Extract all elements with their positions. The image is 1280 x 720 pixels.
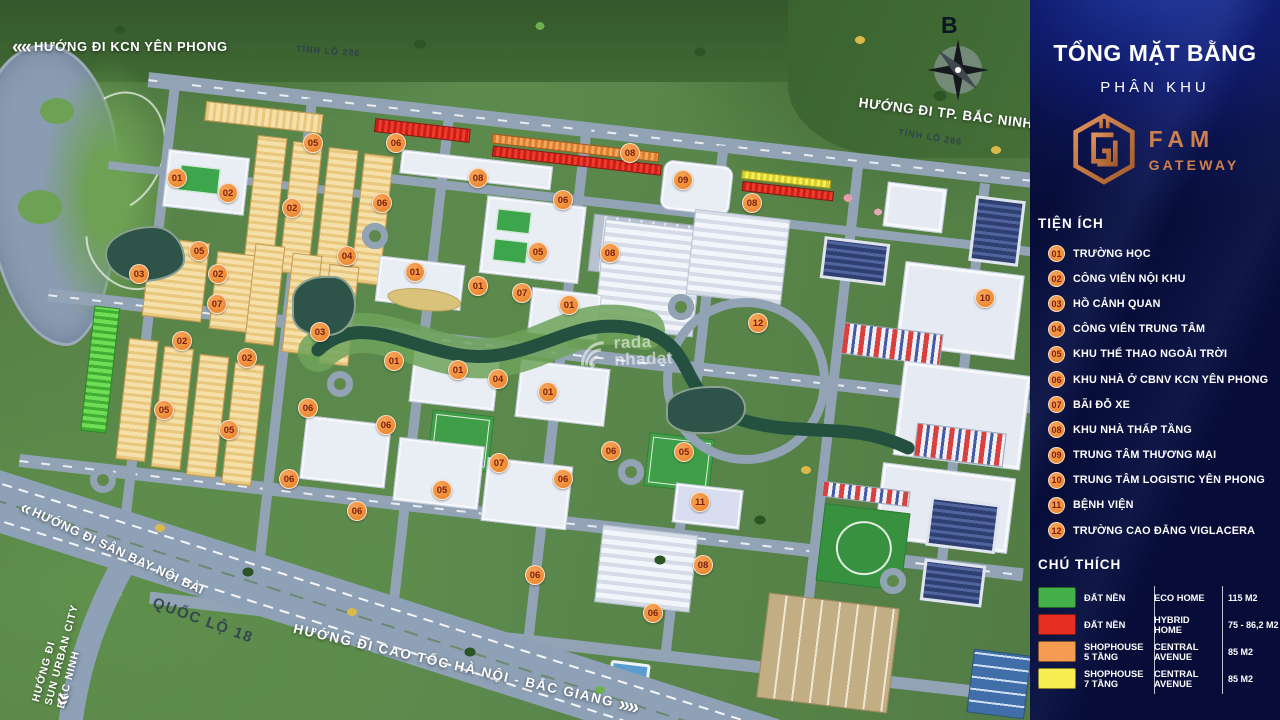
map-marker-01: 01 xyxy=(468,276,488,296)
amenities-heading: TIỆN ÍCH xyxy=(1038,216,1280,231)
amenity-item: 01TRƯỜNG HỌC xyxy=(1048,241,1280,266)
map-marker-07: 07 xyxy=(207,294,227,314)
amenity-item: 07BÃI ĐỖ XE xyxy=(1048,392,1280,417)
legend-row: SHOPHOUSE 5 TẦNGCENTRAL AVENUE85 M2 xyxy=(1038,638,1280,665)
info-panel: TỔNG MẶT BẰNG PHÂN KHU FAM GATEWAY TIỆ xyxy=(1030,0,1280,720)
solar-roof-building xyxy=(920,558,987,607)
chevron-left-icon: « xyxy=(21,36,30,58)
parking-lot xyxy=(756,592,900,713)
map-marker-02: 02 xyxy=(218,183,238,203)
watermark-fan-icon xyxy=(577,335,608,370)
amenity-label: BÃI ĐỖ XE xyxy=(1073,399,1130,411)
amenity-label: BỆNH VIỆN xyxy=(1073,499,1134,511)
direction-label-kcn-yen-phong: «« HƯỚNG ĐI KCN YÊN PHONG xyxy=(12,36,228,59)
solar-roof-building xyxy=(820,236,891,286)
legend-area: 85 M2 xyxy=(1228,647,1280,657)
amenity-item: 08KHU NHÀ THẤP TẦNG xyxy=(1048,417,1280,442)
map-marker-01: 01 xyxy=(405,262,425,282)
map-marker-01: 01 xyxy=(559,295,579,315)
amenity-number-badge: 09 xyxy=(1048,447,1065,464)
ring-road xyxy=(663,298,829,464)
map-marker-02: 02 xyxy=(237,348,257,368)
roundabout xyxy=(90,467,116,493)
amenity-number-badge: 02 xyxy=(1048,270,1065,287)
solar-roof-building xyxy=(925,496,1001,554)
map-marker-05: 05 xyxy=(154,400,174,420)
amenity-label: KHU NHÀ Ở CBNV KCN YÊN PHONG xyxy=(1073,374,1268,386)
map-marker-05: 05 xyxy=(528,242,548,262)
roundabout xyxy=(880,568,906,594)
amenity-number-badge: 03 xyxy=(1048,295,1065,312)
map-marker-06: 06 xyxy=(553,469,573,489)
chevron-left-icon: « xyxy=(12,36,21,58)
amenity-label: TRUNG TÂM THƯƠNG MẠI xyxy=(1073,449,1216,461)
amenity-item: 10TRUNG TÂM LOGISTIC YÊN PHONG xyxy=(1048,468,1280,493)
map-marker-06: 06 xyxy=(376,415,396,435)
roundabout xyxy=(618,459,644,485)
map-marker-05: 05 xyxy=(303,133,323,153)
roundabout xyxy=(362,223,388,249)
amenity-number-badge: 05 xyxy=(1048,346,1065,363)
eco-home-block xyxy=(80,305,120,433)
legend-product-name: CENTRAL AVENUE xyxy=(1154,642,1220,662)
amenity-item: 11BỆNH VIỆN xyxy=(1048,493,1280,518)
amenity-label: CÔNG VIÊN TRUNG TÂM xyxy=(1073,323,1205,335)
legend-type: ĐẤT NỀN xyxy=(1084,620,1146,630)
legend-row: ĐẤT NỀNECO HOME115 M2 xyxy=(1038,584,1280,611)
brand-line-2: GATEWAY xyxy=(1149,157,1240,173)
amenity-number-badge: 01 xyxy=(1048,245,1065,262)
map-marker-02: 02 xyxy=(282,198,302,218)
amenity-number-badge: 08 xyxy=(1048,421,1065,438)
amenity-label: TRUNG TÂM LOGISTIC YÊN PHONG xyxy=(1073,474,1265,486)
legend-type: ĐẤT NỀN xyxy=(1084,593,1146,603)
map-marker-12: 12 xyxy=(748,313,768,333)
map-marker-06: 06 xyxy=(643,603,663,623)
legend: ĐẤT NỀNECO HOME115 M2ĐẤT NỀNHYBRID HOME7… xyxy=(1038,584,1280,700)
lowrise-rows xyxy=(685,209,790,305)
brand-line-1: FAM xyxy=(1149,126,1240,153)
legend-type: SHOPHOUSE 5 TẦNG xyxy=(1084,642,1146,662)
amenity-number-badge: 11 xyxy=(1048,497,1065,514)
map-marker-06: 06 xyxy=(553,190,573,210)
map-area: «« HƯỚNG ĐI KCN YÊN PHONG HƯỚNG ĐI TP. B… xyxy=(0,0,1030,720)
legend-type: SHOPHOUSE 7 TẦNG xyxy=(1084,669,1146,689)
legend-swatch xyxy=(1038,641,1076,662)
legend-row: SHOPHOUSE 7 TẦNGCENTRAL AVENUE85 M2 xyxy=(1038,665,1280,692)
map-marker-04: 04 xyxy=(488,369,508,389)
amenity-item: 03HỒ CẢNH QUAN xyxy=(1048,291,1280,316)
roundabout xyxy=(668,294,694,320)
panel-subtitle: PHÂN KHU xyxy=(1030,79,1280,96)
legend-divider xyxy=(1222,586,1223,694)
map-marker-06: 06 xyxy=(347,501,367,521)
map-marker-08: 08 xyxy=(600,243,620,263)
map-marker-06: 06 xyxy=(298,398,318,418)
amenities-list: 01TRƯỜNG HỌC02CÔNG VIÊN NỘI KHU03HỒ CẢNH… xyxy=(1048,241,1280,543)
map-marker-11: 11 xyxy=(690,492,710,512)
map-marker-07: 07 xyxy=(512,283,532,303)
map-marker-07: 07 xyxy=(489,453,509,473)
map-marker-06: 06 xyxy=(372,193,392,213)
legend-divider xyxy=(1154,586,1155,694)
legend-swatch xyxy=(1038,587,1076,608)
legend-area: 85 M2 xyxy=(1228,674,1280,684)
amenity-label: HỒ CẢNH QUAN xyxy=(1073,298,1161,310)
map-marker-05: 05 xyxy=(674,442,694,462)
map-marker-08: 08 xyxy=(468,168,488,188)
legend-row: ĐẤT NỀNHYBRID HOME75 - 86,2 M2 xyxy=(1038,611,1280,638)
amenity-number-badge: 10 xyxy=(1048,472,1065,489)
map-marker-06: 06 xyxy=(601,441,621,461)
legend-heading: CHÚ THÍCH xyxy=(1038,557,1280,572)
map-marker-01: 01 xyxy=(448,360,468,380)
logo-wordmark: FAM GATEWAY xyxy=(1149,126,1240,173)
map-marker-04: 04 xyxy=(337,246,357,266)
roundabout xyxy=(327,371,353,397)
map-marker-03: 03 xyxy=(310,322,330,342)
map-marker-05: 05 xyxy=(189,241,209,261)
legend-swatch xyxy=(1038,614,1076,635)
compass-north-label: B xyxy=(941,12,958,39)
legend-area: 75 - 86,2 M2 xyxy=(1228,620,1280,630)
amenity-label: KHU NHÀ THẤP TẦNG xyxy=(1073,424,1192,436)
map-marker-06: 06 xyxy=(279,469,299,489)
amenity-item: 06KHU NHÀ Ở CBNV KCN YÊN PHONG xyxy=(1048,367,1280,392)
map-marker-06: 06 xyxy=(386,133,406,153)
map-marker-08: 08 xyxy=(693,555,713,575)
building xyxy=(515,359,611,427)
lowrise-rows xyxy=(594,524,698,612)
watermark: radanhadat xyxy=(577,332,673,369)
amenity-item: 04CÔNG VIÊN TRUNG TÂM xyxy=(1048,317,1280,342)
map-marker-02: 02 xyxy=(208,264,228,284)
amenity-label: CÔNG VIÊN NỘI KHU xyxy=(1073,273,1186,285)
amenity-number-badge: 06 xyxy=(1048,371,1065,388)
amenity-item: 12TRƯỜNG CAO ĐẲNG VIGLACERA xyxy=(1048,518,1280,543)
map-marker-03: 03 xyxy=(129,264,149,284)
amenity-item: 02CÔNG VIÊN NỘI KHU xyxy=(1048,266,1280,291)
map-marker-05: 05 xyxy=(219,420,239,440)
amenity-label: TRƯỜNG CAO ĐẲNG VIGLACERA xyxy=(1073,525,1255,537)
fam-gateway-logo: FAM GATEWAY xyxy=(1030,112,1280,186)
map-marker-08: 08 xyxy=(620,143,640,163)
amenity-label: TRƯỜNG HỌC xyxy=(1073,248,1151,260)
legend-area: 115 M2 xyxy=(1228,593,1280,603)
compass-rose-icon xyxy=(926,38,990,102)
amenity-item: 09TRUNG TÂM THƯƠNG MẠI xyxy=(1048,443,1280,468)
legend-product-name: ECO HOME xyxy=(1154,593,1220,603)
amenity-item: 05KHU THỂ THAO NGOÀI TRỜI xyxy=(1048,342,1280,367)
legend-product-name: CENTRAL AVENUE xyxy=(1154,669,1220,689)
green-court xyxy=(496,209,532,235)
map-marker-10: 10 xyxy=(975,288,995,308)
amenity-number-badge: 07 xyxy=(1048,396,1065,413)
map-marker-06: 06 xyxy=(525,565,545,585)
amenity-label: KHU THỂ THAO NGOÀI TRỜI xyxy=(1073,348,1227,360)
amenity-number-badge: 12 xyxy=(1048,522,1065,539)
solar-roof-building xyxy=(968,195,1026,267)
green-court xyxy=(492,238,528,264)
map-marker-08: 08 xyxy=(742,193,762,213)
amenity-number-badge: 04 xyxy=(1048,321,1065,338)
map-marker-09: 09 xyxy=(673,170,693,190)
map-marker-01: 01 xyxy=(384,351,404,371)
map-marker-01: 01 xyxy=(538,382,558,402)
map-marker-01: 01 xyxy=(167,168,187,188)
panel-title: TỔNG MẶT BẰNG xyxy=(1030,40,1280,67)
map-marker-05: 05 xyxy=(432,480,452,500)
masterplan-screenshot: «« HƯỚNG ĐI KCN YÊN PHONG HƯỚNG ĐI TP. B… xyxy=(0,0,1280,720)
logo-hexagon-icon xyxy=(1071,112,1137,186)
logistics-building xyxy=(882,182,947,234)
legend-product-name: HYBRID HOME xyxy=(1154,615,1220,635)
parking-lot xyxy=(966,649,1030,720)
map-marker-02: 02 xyxy=(172,331,192,351)
legend-swatch xyxy=(1038,668,1076,689)
